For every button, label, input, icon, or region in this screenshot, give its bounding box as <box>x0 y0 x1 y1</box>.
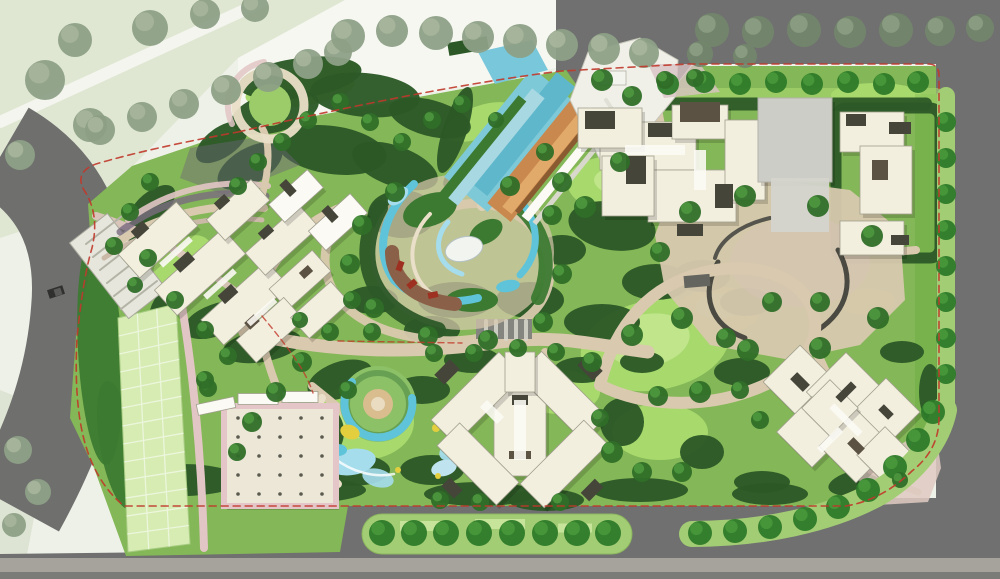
offsite-tree <box>2 513 26 537</box>
garden-tree <box>321 323 339 341</box>
tree-mass <box>734 471 790 493</box>
clubhouse-columns <box>236 492 240 496</box>
roof-strip <box>694 150 706 190</box>
garden-tree <box>292 312 308 328</box>
clubhouse-columns <box>299 435 303 439</box>
street-tree <box>873 73 895 95</box>
street-tree-north <box>966 14 994 42</box>
garden-tree <box>229 177 247 195</box>
clubhouse-columns <box>236 435 240 439</box>
garden-tree <box>867 307 889 329</box>
clubhouse-columns <box>278 416 282 420</box>
south-sidewalk <box>0 558 1000 572</box>
garden-tree <box>339 381 357 399</box>
play-dot <box>435 473 441 479</box>
garden-tree <box>363 323 381 341</box>
street-tree <box>729 73 751 95</box>
garden-tree <box>621 324 643 346</box>
clubhouse-columns <box>278 473 282 477</box>
street-tree <box>433 520 459 546</box>
clubhouse-columns <box>320 454 324 458</box>
garden-tree <box>266 382 286 402</box>
garden-tree <box>105 237 123 255</box>
garden-tree <box>716 328 736 348</box>
garden-tree <box>751 411 769 429</box>
garden-tree <box>610 152 630 172</box>
garden-tree <box>425 344 443 362</box>
garden-tree <box>352 215 372 235</box>
offsite-tree <box>293 49 323 79</box>
garden-tree <box>807 195 829 217</box>
garden-tree <box>737 339 759 361</box>
offsite-tree <box>629 38 659 68</box>
garden-tree <box>762 292 782 312</box>
garden-tree <box>552 264 572 284</box>
garden-tree <box>632 462 652 482</box>
roof-patch <box>715 184 733 208</box>
clubhouse-columns <box>320 492 324 496</box>
roof-patch <box>891 235 909 245</box>
garden-tree <box>686 69 704 87</box>
street-tree <box>856 478 880 502</box>
garden-tree <box>689 381 711 403</box>
offsite-tree <box>127 102 157 132</box>
tree-mass <box>880 341 924 363</box>
garden-tree <box>340 254 360 274</box>
garden-tree <box>465 344 483 362</box>
master-plan-svg <box>0 0 1000 579</box>
garden-tree <box>547 343 565 361</box>
garden-tree <box>574 196 596 218</box>
roof-patch <box>648 123 672 137</box>
garden-tree <box>509 339 527 357</box>
offsite-tree <box>5 140 35 170</box>
offsite-tree <box>4 436 32 464</box>
podium <box>758 98 832 182</box>
offsite-tree <box>85 115 115 145</box>
roof-patch <box>680 102 720 122</box>
offsite-tree <box>25 60 65 100</box>
garden-tree <box>656 71 674 89</box>
garden-tree <box>121 203 139 221</box>
garden-tree <box>552 172 572 192</box>
clubhouse-columns <box>236 473 240 477</box>
play-dot <box>395 467 401 473</box>
garden-tree <box>536 143 554 161</box>
street-tree <box>499 520 525 546</box>
garden-tree <box>139 249 157 267</box>
roof-patch <box>680 102 720 122</box>
building-footprint <box>505 352 535 392</box>
garden-tree <box>364 298 384 318</box>
garden-tree <box>601 441 623 463</box>
garden-tree <box>219 347 237 365</box>
clubhouse-columns <box>299 473 303 477</box>
garden-tree <box>809 337 831 359</box>
garden-tree <box>591 69 613 91</box>
offsite-tree <box>331 19 365 53</box>
playground-center <box>371 397 385 411</box>
garden-tree <box>196 371 214 389</box>
garden-tree <box>551 493 569 511</box>
garden-tree <box>127 277 143 293</box>
garden-tree <box>810 292 830 312</box>
clubhouse-columns <box>320 435 324 439</box>
offsite-tree <box>132 10 168 46</box>
street-tree <box>837 71 859 93</box>
street-tree <box>723 519 747 543</box>
offsite-tree <box>253 62 283 92</box>
garden-tree <box>423 111 441 129</box>
clubhouse-columns <box>320 416 324 420</box>
clubhouse-columns <box>299 454 303 458</box>
offsite-tree <box>588 33 620 65</box>
street-tree <box>688 521 712 545</box>
clubhouse-columns <box>278 454 282 458</box>
garden-tree <box>679 201 701 223</box>
south-road-edge <box>0 572 1000 579</box>
garden-tree <box>453 95 471 113</box>
street-tree <box>801 73 823 95</box>
street-tree-north <box>925 16 955 46</box>
offsite-tree <box>190 0 220 29</box>
garden-tree <box>591 409 609 427</box>
street-tree <box>595 520 621 546</box>
street-tree <box>793 507 817 531</box>
offsite-tree <box>58 23 92 57</box>
garden-tree <box>385 182 405 202</box>
garden-tree <box>731 381 749 399</box>
street-tree <box>369 520 395 546</box>
offsite-tree <box>503 24 537 58</box>
street-tree <box>401 520 427 546</box>
garden-tree <box>734 185 756 207</box>
roof-strip <box>514 400 526 460</box>
street-tree <box>826 495 850 519</box>
street-tree <box>921 400 945 424</box>
offsite-tree <box>376 15 408 47</box>
garden-tree <box>542 205 562 225</box>
clubhouse-columns <box>257 454 261 458</box>
pergola <box>684 274 711 288</box>
clubhouse-columns <box>257 492 261 496</box>
offsite-tree <box>546 29 578 61</box>
garden-tree <box>488 112 504 128</box>
roof-patch <box>585 111 615 129</box>
roof-patch <box>846 114 866 126</box>
clubhouse-columns <box>299 416 303 420</box>
offsite-tree <box>419 16 453 50</box>
clubhouse-columns <box>257 435 261 439</box>
garden-tree <box>648 386 668 406</box>
garden-tree <box>672 462 692 482</box>
garden-tree <box>533 312 553 332</box>
offsite-tree <box>462 21 494 53</box>
garden-tree <box>361 113 379 131</box>
garden-tree <box>861 225 883 247</box>
clubhouse-columns <box>236 416 240 420</box>
garden-tree <box>471 493 489 511</box>
street-tree <box>906 428 930 452</box>
garden-tree <box>242 412 262 432</box>
street-tree <box>532 520 558 546</box>
garden-tree <box>273 133 291 151</box>
street-tree <box>466 520 492 546</box>
garden-tree <box>228 443 246 461</box>
garden-tree <box>196 321 214 339</box>
garden-tree <box>141 173 159 191</box>
street-tree-north <box>687 41 713 67</box>
garden-tree <box>582 352 602 372</box>
clubhouse-columns <box>257 473 261 477</box>
roof-patch <box>889 122 911 134</box>
garden-tree <box>650 242 670 262</box>
roof-patch <box>872 160 888 180</box>
clubhouse-columns <box>278 435 282 439</box>
clubhouse-columns <box>299 492 303 496</box>
street-tree <box>758 515 782 539</box>
street-tree <box>907 71 929 93</box>
offsite-tree <box>169 89 199 119</box>
street-tree-north <box>742 16 774 48</box>
garden-tree <box>622 86 642 106</box>
roof-patch <box>872 160 888 180</box>
garden-tree <box>343 291 361 309</box>
clubhouse-columns <box>278 492 282 496</box>
garden-tree <box>478 330 498 350</box>
garden-tree <box>671 307 693 329</box>
garden-tree <box>500 176 520 196</box>
street-tree <box>564 520 590 546</box>
street-tree <box>765 71 787 93</box>
garden-tree <box>166 291 184 309</box>
offsite-tree <box>211 75 241 105</box>
street-tree-north <box>879 13 913 47</box>
roof-patch <box>677 224 703 236</box>
garden-tree <box>299 111 317 129</box>
garden-tree <box>393 133 411 151</box>
landscape-master-plan <box>0 0 1000 579</box>
garden-tree <box>249 153 267 171</box>
offsite-tree <box>25 479 51 505</box>
street-tree-north <box>787 13 821 47</box>
street-tree-north <box>834 16 866 48</box>
clubhouse-columns <box>320 473 324 477</box>
roof-strip <box>625 145 685 155</box>
